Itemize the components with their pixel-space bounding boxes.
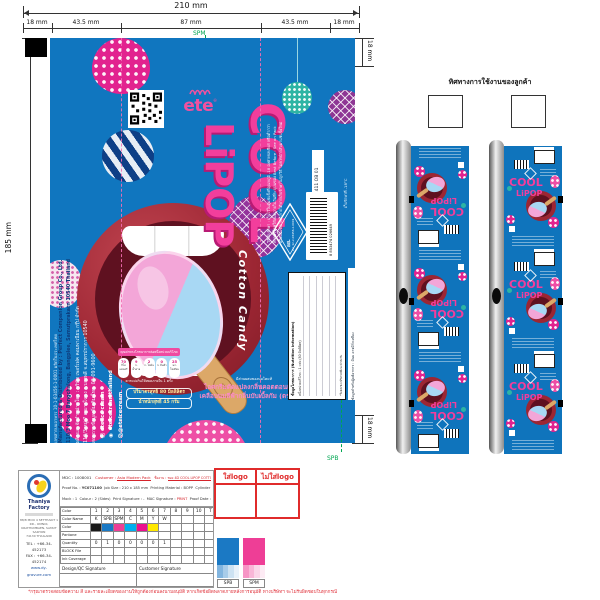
mini-text-lines (419, 352, 461, 364)
registration-line: เลขสารบบอาหาร 10-1-03456-1-0001 ผลิตในปร… (52, 133, 59, 443)
ink-swatch-spm (114, 524, 125, 532)
mini-product-name: COOL (430, 206, 464, 217)
colour-count: 2 (Sides) (95, 497, 111, 501)
mini-egg (548, 217, 559, 228)
gda-badge: 0ก. อิ่มตัว (156, 358, 167, 378)
mini-text-lines (540, 372, 556, 380)
egg-decoration (162, 420, 250, 443)
mini-product-name: COOL (509, 381, 543, 392)
mini-allergen-strip (419, 244, 439, 247)
mini-egg (548, 319, 559, 330)
mini-text-lines (512, 234, 554, 246)
crown-icon (189, 86, 211, 95)
mini-product-name2: LiPOP (516, 394, 542, 402)
ink-swatch-c (125, 524, 136, 532)
job-header-row3: Mock : 1 Colour : 2 (Sides) Print Signat… (62, 494, 211, 505)
social-handle-label: @eteicecream (118, 392, 124, 433)
dimension-line (362, 415, 363, 443)
allergen-info: ข้อมูลสำหรับผู้แพ้อาหาร : มีนม อาจมีถั่ว… (350, 268, 355, 400)
dimension-total-width: 210 mm (141, 1, 241, 10)
roll2-repeat-3: COOL LiPOP (504, 350, 562, 452)
customer-signature-cell[interactable] (137, 574, 213, 586)
ink-swatch-w (159, 524, 170, 532)
mini-text-lines (512, 438, 554, 450)
plate-mark-line (341, 400, 342, 452)
design-signature-cell[interactable] (60, 574, 137, 586)
ink-swatch-k (91, 524, 102, 532)
mini-allergen-strip (534, 352, 554, 355)
packaging-proof-sheet: 210 mm 18 mm 43.5 mm 87 mm 43.5 mm 18 mm… (0, 0, 600, 600)
manufacturer-line-th1: ผลิตและจัดจำหน่ายโดย : บริษัท เพอร์เฟค ค… (75, 133, 83, 443)
swatch-solid (217, 538, 239, 565)
printing-material: BOPP (183, 486, 193, 490)
printer-fax: FAX : +66-34-452174 (19, 553, 59, 565)
mini-qr-code (458, 366, 464, 372)
without-logo-header: ไม่ใส่logo (257, 470, 298, 485)
mini-qr-code (458, 162, 464, 168)
mini-barcode (514, 262, 529, 271)
dimension-tick (352, 443, 374, 444)
mini-allergen-strip (534, 148, 554, 151)
printer-address: 88/8 MOO 4 SETTHAKIT 1 RD., OMNOI, KRATH… (19, 518, 59, 538)
ink-swatch-m (137, 524, 148, 532)
nutrition-subtitle: หนึ่งหน่วยบริโภค : 1 แท่ง (80 มิลลิลิตร) (297, 276, 302, 396)
mini-barcode (444, 429, 459, 438)
mini-text-lines (417, 218, 433, 226)
mini-qr-code (458, 264, 464, 270)
printer-address-line1: 88/8 MOO 4 SETTHAKIT 1 RD., OMNOI, (19, 518, 59, 526)
mini-nutrition-panel (534, 150, 555, 164)
printer-tel: TEL : +66-34-452173 (19, 541, 59, 553)
manufacturer-line-en2: 110/3 Moo 7 Bangchalong, Bangplee, Samut… (67, 133, 72, 443)
dimension-tick (330, 23, 331, 33)
dimension-right-top: 18 mm (366, 40, 373, 61)
dimension-tick (261, 23, 262, 33)
dimension-tick (52, 23, 53, 33)
product-name-line2: LiPOP (200, 122, 238, 247)
consumer-hotline: สอบถามข้อมูลเพิ่มเติม โทร. 02-091-9600 (91, 133, 99, 443)
proof-disclaimer: *กรุณาตรวจสอบข้อความ สี และรายละเอียดของ… (28, 589, 458, 596)
mini-product-name: COOL (430, 410, 464, 421)
printer-website: www.dy-gravure.com (19, 565, 59, 577)
proof-swatch-spm (243, 538, 265, 578)
roll-note-box-1 (428, 95, 463, 128)
dimension-tick (352, 66, 374, 67)
mini-nutrition-panel (534, 252, 555, 266)
allergen-strip: ข้อมูลสำหรับผู้แพ้อาหาร : มีนม อาจมีถั่ว… (348, 268, 355, 400)
color-sequence-table: Color Sequence12345678910T Color NameKSP… (60, 507, 213, 564)
gda-title: คุณค่าทางโภชนาการต่อหนึ่งหน่วยบริโภค (118, 348, 180, 356)
logo-divider (25, 513, 53, 516)
nutrition-title: ข้อมูลโภชนาการ (Nutrition Information) (290, 276, 296, 396)
mac-signature: PRINT (177, 497, 188, 501)
dimension-tick (359, 23, 360, 33)
roll-artwork-repeat: COOL LiPOP (411, 248, 469, 350)
mini-text-lines (540, 168, 556, 176)
proof-number: YC071100 (82, 486, 102, 490)
mini-nutrition-panel (418, 332, 439, 346)
dimension-tick (352, 415, 374, 416)
nutrition-table-lines (303, 276, 339, 396)
mini-text-lines (417, 422, 433, 430)
dimension-tick (121, 23, 122, 33)
fda-diamond: อย. สบ. 12-2-03456-2-0001 (272, 203, 308, 261)
barcode-bars (310, 198, 327, 254)
mini-egg (458, 170, 467, 179)
mini-text-lines (540, 270, 556, 278)
fda-number: สบ. 12-2-03456-2-0001 (291, 213, 295, 251)
brand-name: ete® (180, 99, 220, 114)
roll-eye-mark (409, 196, 414, 203)
mini-barcode (514, 160, 529, 169)
with-logo-cell[interactable] (216, 485, 257, 517)
with-logo-header: ใส่logo (216, 470, 257, 485)
mini-text-lines (419, 148, 461, 160)
job-header: MDC : 1008001 Customer : Asia Modern Pac… (60, 471, 213, 507)
dimension-tick (352, 38, 374, 39)
at-icon: ＠ (118, 433, 124, 438)
mdc-number: 1008001 (75, 475, 92, 480)
mini-product-name: COOL (509, 177, 543, 188)
printer-address-line3: 74130 THAILAND (19, 534, 59, 538)
mini-egg (550, 379, 560, 392)
roll-preview-1: COOL LiPOP COOL LiPOP (411, 146, 469, 454)
roll-core-hole-2 (492, 288, 501, 304)
barcode-number: 8 853474 026649 (329, 196, 333, 256)
roll-artwork-repeat: COOL LiPOP (504, 248, 562, 350)
job-header-row1: MDC : 1008001 Customer : Asia Modern Pac… (62, 472, 211, 483)
dimension-right-bottom: 18 mm (366, 417, 373, 438)
plate-mark-spm: SPM (193, 30, 206, 37)
mini-text-lines (419, 250, 461, 262)
without-logo-cell[interactable] (257, 485, 298, 517)
roll-artwork-repeat: COOL LiPOP (411, 350, 469, 452)
social-facebook: ⓕ ete ice cream (99, 278, 106, 438)
gda-badge: 9ก. น้ำตาล (131, 358, 142, 378)
mini-nutrition-panel (534, 354, 555, 368)
mini-egg (550, 175, 560, 188)
mini-product-name: COOL (509, 279, 543, 290)
trademark-symbol: ® (213, 98, 217, 103)
ornament-string (297, 38, 298, 84)
roll-artwork-repeat: COOL LiPOP (411, 146, 469, 248)
dimension-line (362, 38, 363, 66)
eye-mark-bottom (25, 424, 47, 443)
job-name: ซอง 4D COOL LIPOP COTTON CANDY 80 ML. (168, 476, 211, 481)
mini-egg (506, 419, 515, 428)
instagram-icon: ◉ (108, 430, 114, 438)
net-volume: ปริมาตรสุทธิ 80 มิลลิลิตร (126, 388, 192, 399)
mini-qr-code (509, 328, 515, 334)
job-size: 210 x 185 mm (122, 486, 148, 490)
roll-eye-mark (558, 196, 563, 203)
arrow-left-icon (24, 10, 29, 16)
ink-swatch-y (148, 524, 159, 532)
mini-egg (548, 421, 559, 432)
roll1-repeat-2: COOL LiPOP (411, 248, 469, 350)
social-facebook-label: ete ice cream (100, 391, 106, 431)
roll-note-box-2 (511, 95, 546, 128)
swatch-label-spb: SPB (217, 579, 239, 588)
ink-swatch-spb (102, 524, 113, 532)
manufacturer-line-en1: Manufactured & Distributed by : Perfect … (59, 133, 64, 443)
printer-company-block: Thaniya Factory 88/8 MOO 4 SETTHAKIT 1 R… (19, 471, 60, 587)
print-spec-table: Thaniya Factory 88/8 MOO 4 SETTHAKIT 1 R… (18, 470, 214, 588)
job-header-row2: Proof No. : YC071100 Job Size : 210 x 18… (62, 483, 211, 494)
gda-badge: 2ก. ไขมัน (144, 358, 155, 378)
roll-core-hole-1 (399, 288, 408, 304)
mini-allergen-strip (534, 250, 554, 253)
social-instagram: ◉ eteicecreamthailand (108, 278, 114, 438)
social-instagram-label: eteicecreamthailand (108, 370, 114, 430)
eye-mark-top (25, 38, 47, 57)
qr-code (128, 90, 164, 128)
mini-qr-code (509, 226, 515, 232)
mini-product-name2: LiPOP (431, 298, 457, 306)
nutrition-panel: ข้อมูลโภชนาการ (Nutrition Information) ห… (288, 272, 346, 400)
gda-badges: 70กิโลแคลอรี 9ก. น้ำตาล 2ก. ไขมัน 0ก. อิ… (118, 358, 180, 378)
mini-nutrition-panel (418, 230, 439, 244)
roll-preview-2: COOL LiPOP COOL LiPOP (504, 146, 562, 454)
roll-artwork-repeat: COOL LiPOP (504, 146, 562, 248)
logo-dot (34, 480, 39, 485)
net-weight: น้ำหนักสุทธิ 45 กรัม (126, 398, 192, 409)
mini-product-name2: LiPOP (431, 400, 457, 408)
signature-block: Design/QC Signature Customer Signature (60, 564, 213, 587)
roll-direction-title: ทิศทางการใช้งานของลูกค้า (405, 77, 575, 88)
roll-eye-mark (409, 298, 414, 305)
print-signature: - (143, 497, 144, 501)
dimension-tick (359, 6, 360, 18)
arrow-right-icon (353, 10, 358, 16)
dimension-tick (22, 443, 38, 444)
printer-logo (27, 474, 51, 498)
printer-address-line2: KRATHUMBAEN, SAMUT SAKHON (19, 526, 59, 534)
cold-storage-line: เก็บรักษาที่ -18°C (343, 88, 349, 208)
mini-egg (458, 272, 467, 281)
mini-qr-code (509, 430, 515, 436)
dimension-line (30, 40, 31, 442)
mini-egg (506, 215, 515, 224)
customer-name: Asia Modern Pack (117, 475, 150, 481)
mini-product-name2: LiPOP (516, 292, 542, 300)
wrapper-artwork: COOL LiPOP ete Cotton Candy เลขสารบบอาหา… (50, 38, 355, 443)
roll-eye-mark (409, 400, 414, 407)
mini-egg (458, 374, 467, 383)
proof-swatch-spb (217, 538, 239, 578)
gda-badge: 70กิโลแคลอรี (118, 358, 129, 378)
ball-decoration (328, 90, 355, 124)
mini-allergen-strip (419, 346, 439, 349)
barcode: 8 853474 026649 (306, 192, 338, 260)
dimension-line (23, 13, 359, 14)
dimension-line (23, 28, 359, 29)
mini-product-name2: LiPOP (431, 196, 457, 204)
roll-eye-mark (558, 400, 563, 407)
design-signature-label: Design/QC Signature (60, 564, 137, 573)
mock-count: 1 (75, 497, 77, 501)
mini-allergen-strip (419, 448, 439, 451)
dimension-tick (23, 23, 24, 33)
mini-product-name: COOL (430, 308, 464, 319)
mini-nutrition-panel (418, 434, 439, 448)
mini-product-name2: LiPOP (516, 190, 542, 198)
qr-pattern (130, 92, 162, 125)
roll2-repeat-1: COOL LiPOP (504, 146, 562, 248)
gda-caption: ควรแบ่งกินให้หมดภายใน 1 ครั้ง (118, 379, 180, 384)
customer-signature-label: Customer Signature (137, 564, 213, 573)
dimension-height: 185 mm (4, 222, 13, 253)
nutrition-note: *ร้อยละของปริมาณที่แนะนำต่อวัน (339, 276, 343, 396)
plate-mark-spb: SPB (327, 455, 339, 462)
dimension-seg2: 43.5 mm (66, 19, 106, 26)
roll1-repeat-3: COOL LiPOP (411, 350, 469, 452)
roll-eye-mark (558, 298, 563, 305)
logo-approval-boxes: ใส่logo ไม่ใส่logo (214, 468, 300, 519)
roll-artwork-repeat: COOL LiPOP (504, 350, 562, 452)
mini-egg (550, 277, 560, 290)
brand-logo: ete® (180, 80, 220, 114)
gda-badge: 25มก. โซเดียม (169, 358, 180, 378)
mini-barcode (444, 327, 459, 336)
printer-company-name: Thaniya Factory (19, 499, 59, 511)
dimension-seg4: 43.5 mm (275, 19, 315, 26)
facebook-icon: ⓕ (100, 431, 106, 438)
mini-barcode (444, 225, 459, 234)
mini-text-lines (417, 320, 433, 328)
swatch-label-spm: SPM (243, 579, 265, 588)
manufacturer-line-th2: 110/3 หมู่ 7 ต.บางโฉลง อ.บางพลี จ.สมุทรป… (83, 133, 91, 443)
flavor-name: Cotton Candy (236, 250, 249, 390)
mini-text-lines (512, 336, 554, 348)
roll1-repeat-1: COOL LiPOP (411, 146, 469, 248)
spec-content: MDC : 1008001 Customer : Asia Modern Pac… (60, 471, 213, 587)
roll2-repeat-2: COOL LiPOP (504, 248, 562, 350)
dimension-seg3: 87 mm (171, 19, 211, 26)
mini-barcode (514, 364, 529, 373)
mini-egg (506, 317, 515, 326)
swatch-solid (243, 538, 265, 565)
striped-ball-decoration (102, 130, 154, 182)
